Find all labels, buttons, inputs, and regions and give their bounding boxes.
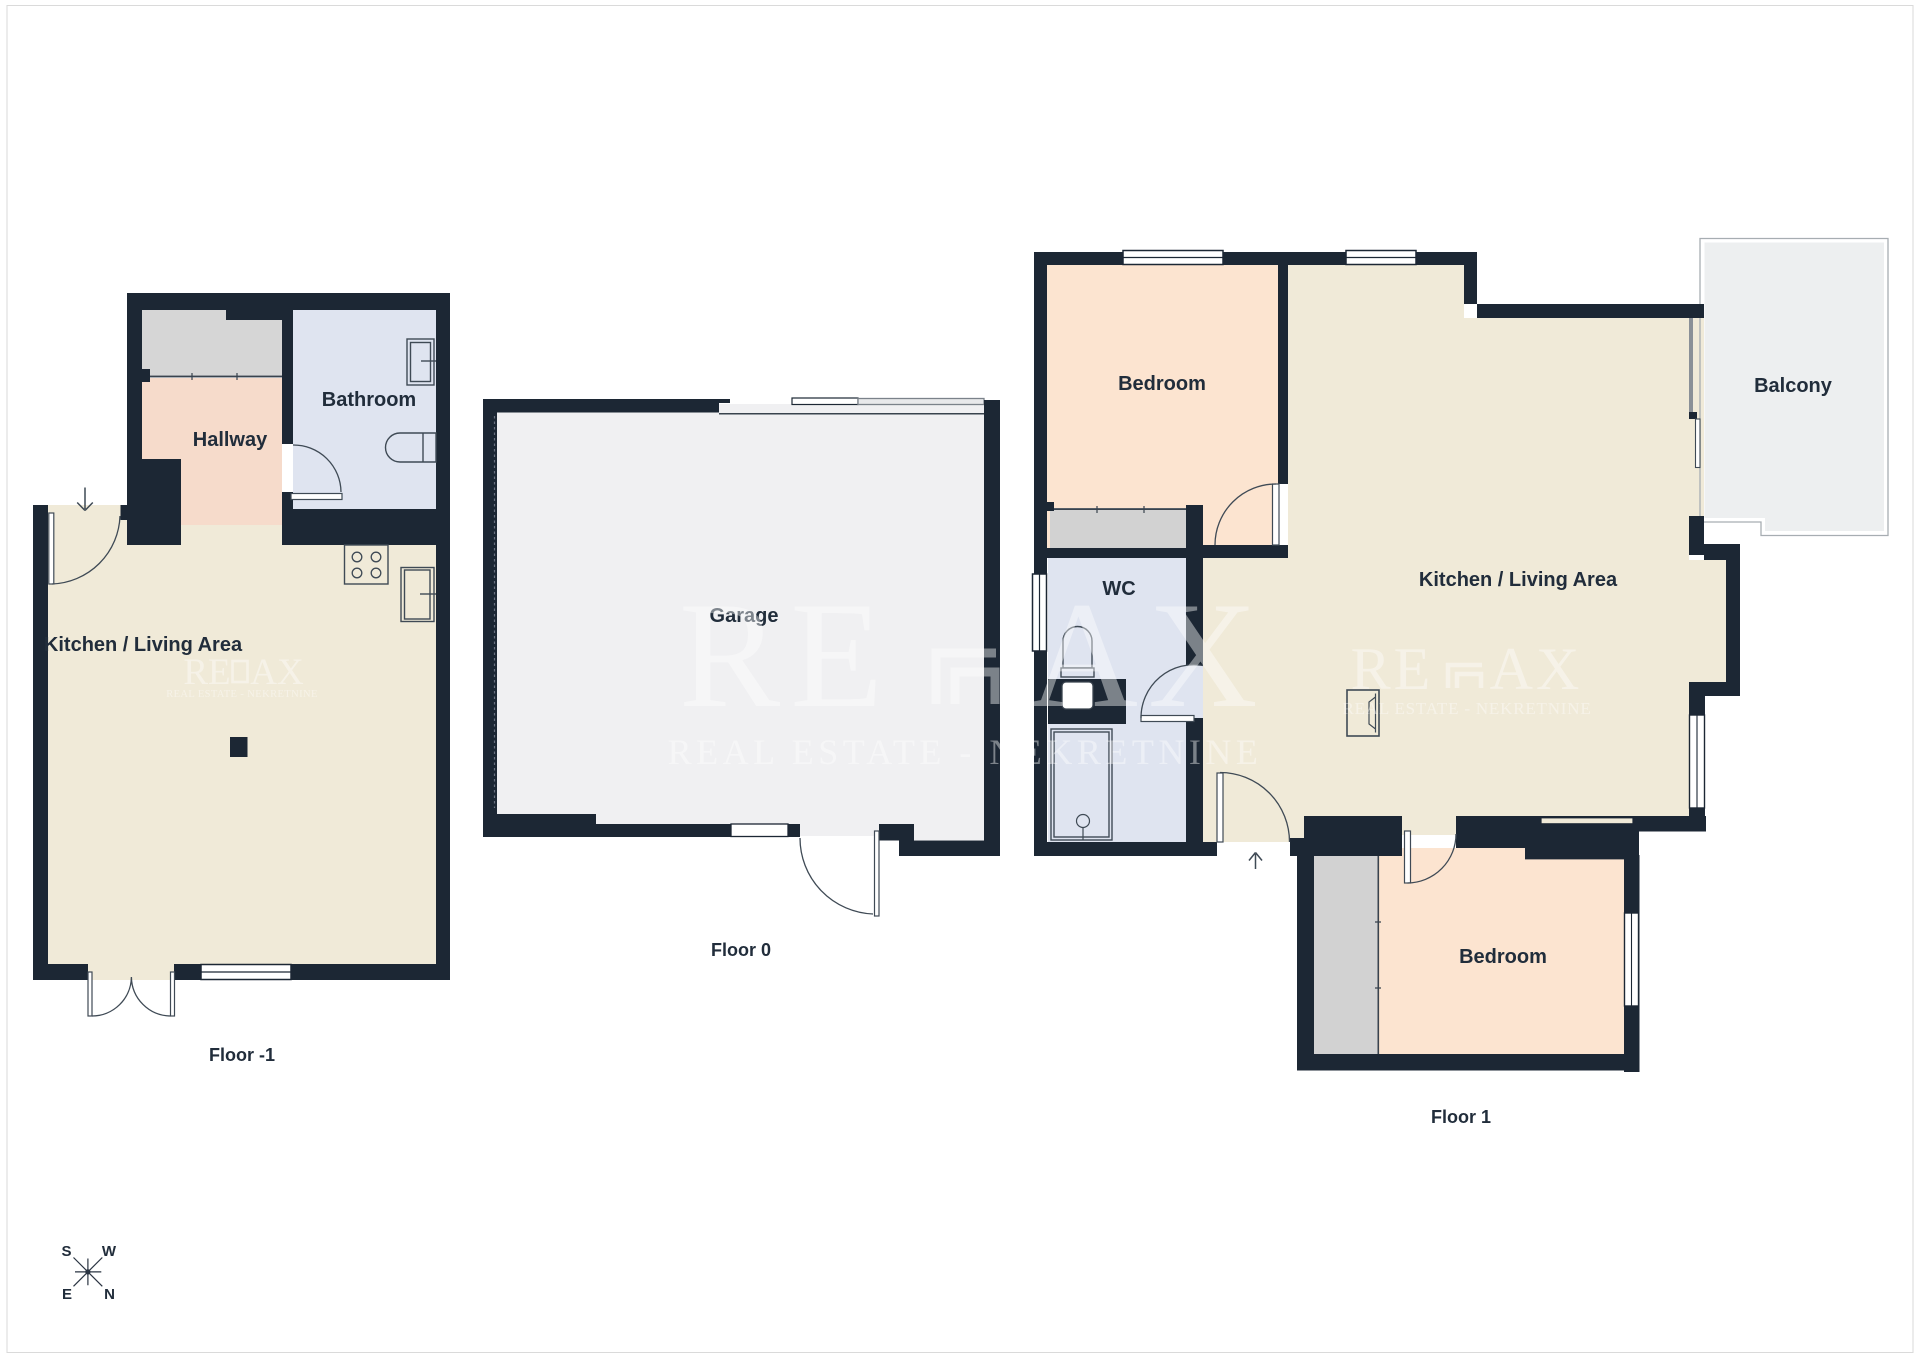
svg-text:REAL ESTATE - NEKRETNINE: REAL ESTATE - NEKRETNINE: [668, 732, 1263, 772]
svg-text:S: S: [61, 1243, 71, 1260]
svg-text:Floor 1: Floor 1: [1431, 1107, 1491, 1127]
svg-text:E: E: [62, 1286, 72, 1303]
svg-text:AX: AX: [250, 652, 304, 693]
svg-text:Floor -1: Floor -1: [209, 1045, 275, 1065]
svg-text:AX: AX: [1028, 571, 1268, 739]
svg-text:REAL ESTATE - NEKRETNINE: REAL ESTATE - NEKRETNINE: [1342, 699, 1591, 718]
svg-text:RE: RE: [679, 571, 893, 739]
svg-text:N: N: [104, 1286, 115, 1303]
svg-text:REAL ESTATE - NEKRETNINE: REAL ESTATE - NEKRETNINE: [166, 689, 318, 700]
svg-text:Hallway: Hallway: [193, 429, 268, 451]
svg-text:Bedroom: Bedroom: [1459, 946, 1547, 968]
svg-text:Balcony: Balcony: [1754, 375, 1833, 397]
svg-text:W: W: [102, 1243, 117, 1260]
svg-text:RE: RE: [183, 652, 230, 693]
svg-text:Bathroom: Bathroom: [322, 389, 416, 411]
svg-text:Bedroom: Bedroom: [1118, 373, 1206, 395]
svg-text:Kitchen / Living Area: Kitchen / Living Area: [1419, 569, 1618, 591]
svg-text:AX: AX: [1490, 636, 1583, 702]
svg-text:Floor 0: Floor 0: [711, 940, 771, 960]
svg-text:RE: RE: [1351, 636, 1434, 702]
